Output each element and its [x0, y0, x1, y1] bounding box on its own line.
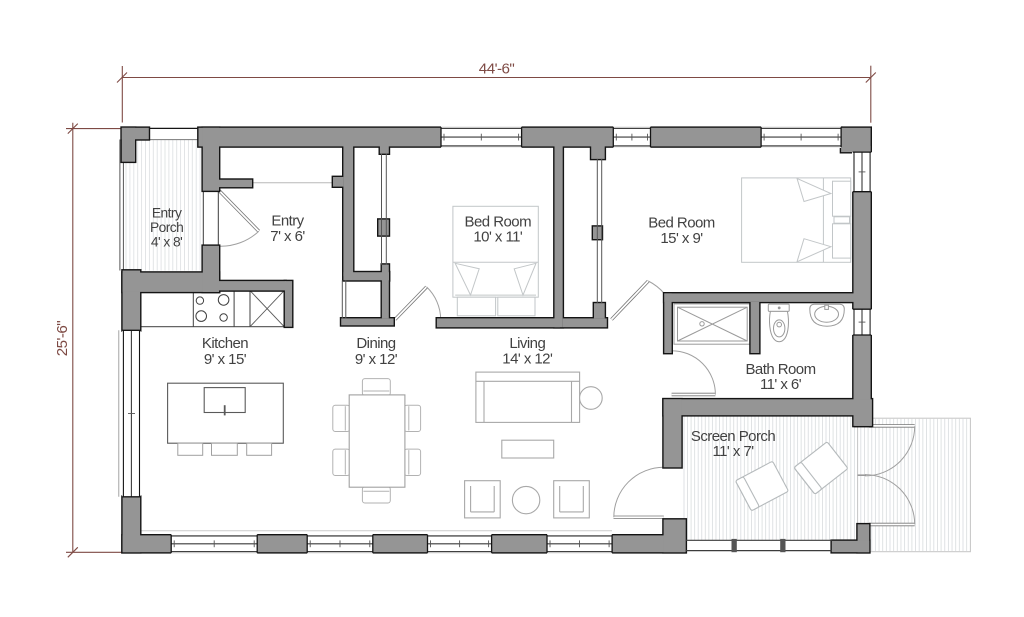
svg-text:Entry: Entry: [271, 213, 304, 230]
svg-text:Kitchen: Kitchen: [202, 335, 248, 352]
svg-text:Dining: Dining: [356, 335, 395, 352]
svg-text:11' x 6': 11' x 6': [760, 376, 802, 393]
svg-text:10' x 11': 10' x 11': [473, 229, 523, 246]
svg-text:Entry: Entry: [152, 206, 182, 221]
svg-text:14' x 12': 14' x 12': [502, 350, 553, 367]
svg-text:7' x 6': 7' x 6': [270, 228, 305, 245]
svg-text:44'-6": 44'-6": [479, 61, 515, 78]
svg-text:Bed Room: Bed Room: [648, 214, 715, 231]
svg-text:9' x 12': 9' x 12': [355, 351, 398, 368]
svg-text:11' x 7': 11' x 7': [712, 443, 754, 460]
svg-text:15' x 9': 15' x 9': [660, 230, 703, 247]
svg-text:25'-6": 25'-6": [54, 321, 71, 357]
svg-text:4' x 8': 4' x 8': [151, 235, 182, 250]
svg-text:Porch: Porch: [150, 220, 183, 235]
svg-text:9' x 15': 9' x 15': [204, 351, 247, 368]
